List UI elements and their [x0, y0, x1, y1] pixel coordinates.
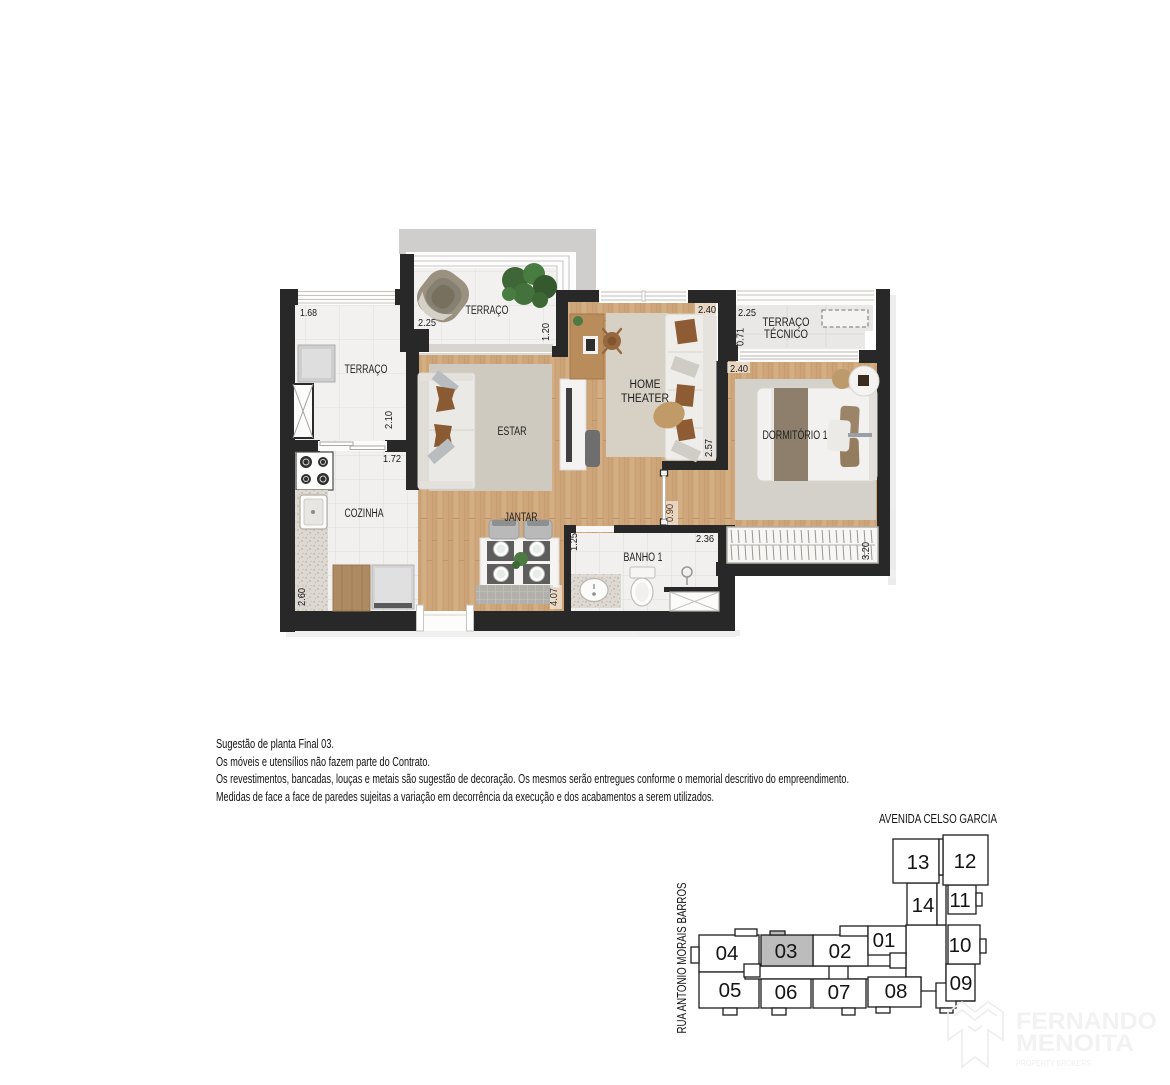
svg-text:04: 04: [716, 942, 739, 965]
svg-text:05: 05: [719, 979, 742, 1002]
svg-text:14: 14: [912, 894, 935, 917]
svg-text:TÉCNICO: TÉCNICO: [764, 328, 808, 341]
svg-text:THEATER: THEATER: [621, 393, 669, 405]
svg-text:HOME: HOME: [630, 379, 661, 391]
svg-text:0.90: 0.90: [664, 504, 676, 522]
svg-text:09: 09: [950, 972, 973, 995]
svg-text:DORMITÓRIO 1: DORMITÓRIO 1: [763, 429, 828, 442]
svg-text:TERRAÇO: TERRAÇO: [345, 364, 388, 376]
svg-text:06: 06: [775, 981, 798, 1004]
svg-text:AVENIDA CELSO GARCIA: AVENIDA CELSO GARCIA: [879, 811, 997, 826]
svg-text:1.72: 1.72: [383, 453, 401, 465]
svg-text:01: 01: [873, 929, 896, 952]
svg-text:TERRAÇO: TERRAÇO: [763, 317, 810, 329]
svg-text:08: 08: [885, 980, 908, 1003]
svg-text:2.40: 2.40: [698, 304, 716, 316]
svg-text:11: 11: [949, 889, 970, 912]
svg-text:03: 03: [775, 940, 798, 963]
svg-text:RUA ANTONIO MORAIS BARROS: RUA ANTONIO MORAIS BARROS: [674, 882, 689, 1033]
svg-text:4.07: 4.07: [548, 588, 560, 606]
svg-text:10: 10: [949, 934, 972, 957]
svg-text:02: 02: [829, 940, 852, 963]
svg-text:MENOITA: MENOITA: [1016, 1030, 1134, 1057]
svg-text:Os móveis e utensílios não faz: Os móveis e utensílios não fazem parte d…: [216, 754, 430, 769]
svg-text:2.57: 2.57: [703, 439, 715, 457]
svg-text:2.36: 2.36: [696, 533, 714, 545]
svg-text:Medidas de face a face de pare: Medidas de face a face de paredes sujeit…: [216, 789, 714, 804]
svg-text:1.20: 1.20: [540, 323, 552, 341]
svg-text:2.25: 2.25: [738, 307, 756, 319]
svg-text:1.25: 1.25: [568, 533, 580, 551]
svg-text:Os revestimentos, bancadas, lo: Os revestimentos, bancadas, louças e met…: [216, 771, 849, 786]
svg-text:BANHO 1: BANHO 1: [624, 552, 663, 564]
svg-text:3.20: 3.20: [860, 542, 872, 560]
svg-text:0.71: 0.71: [735, 328, 747, 346]
svg-text:PROPERTY BROKERS: PROPERTY BROKERS: [1016, 1059, 1091, 1068]
svg-text:TERRAÇO: TERRAÇO: [466, 305, 509, 317]
svg-text:1.68: 1.68: [300, 307, 317, 319]
svg-text:Sugestão de planta Final 03.: Sugestão de planta Final 03.: [216, 736, 334, 751]
svg-text:2.10: 2.10: [383, 411, 395, 429]
svg-text:2.60: 2.60: [296, 588, 308, 606]
svg-text:2.40: 2.40: [730, 363, 748, 375]
svg-text:2.25: 2.25: [418, 317, 436, 329]
svg-text:JANTAR: JANTAR: [505, 512, 538, 524]
svg-text:ESTAR: ESTAR: [498, 426, 527, 438]
svg-text:07: 07: [828, 981, 851, 1004]
svg-text:13: 13: [907, 851, 930, 874]
svg-text:12: 12: [954, 850, 977, 873]
svg-text:COZINHA: COZINHA: [345, 508, 384, 520]
